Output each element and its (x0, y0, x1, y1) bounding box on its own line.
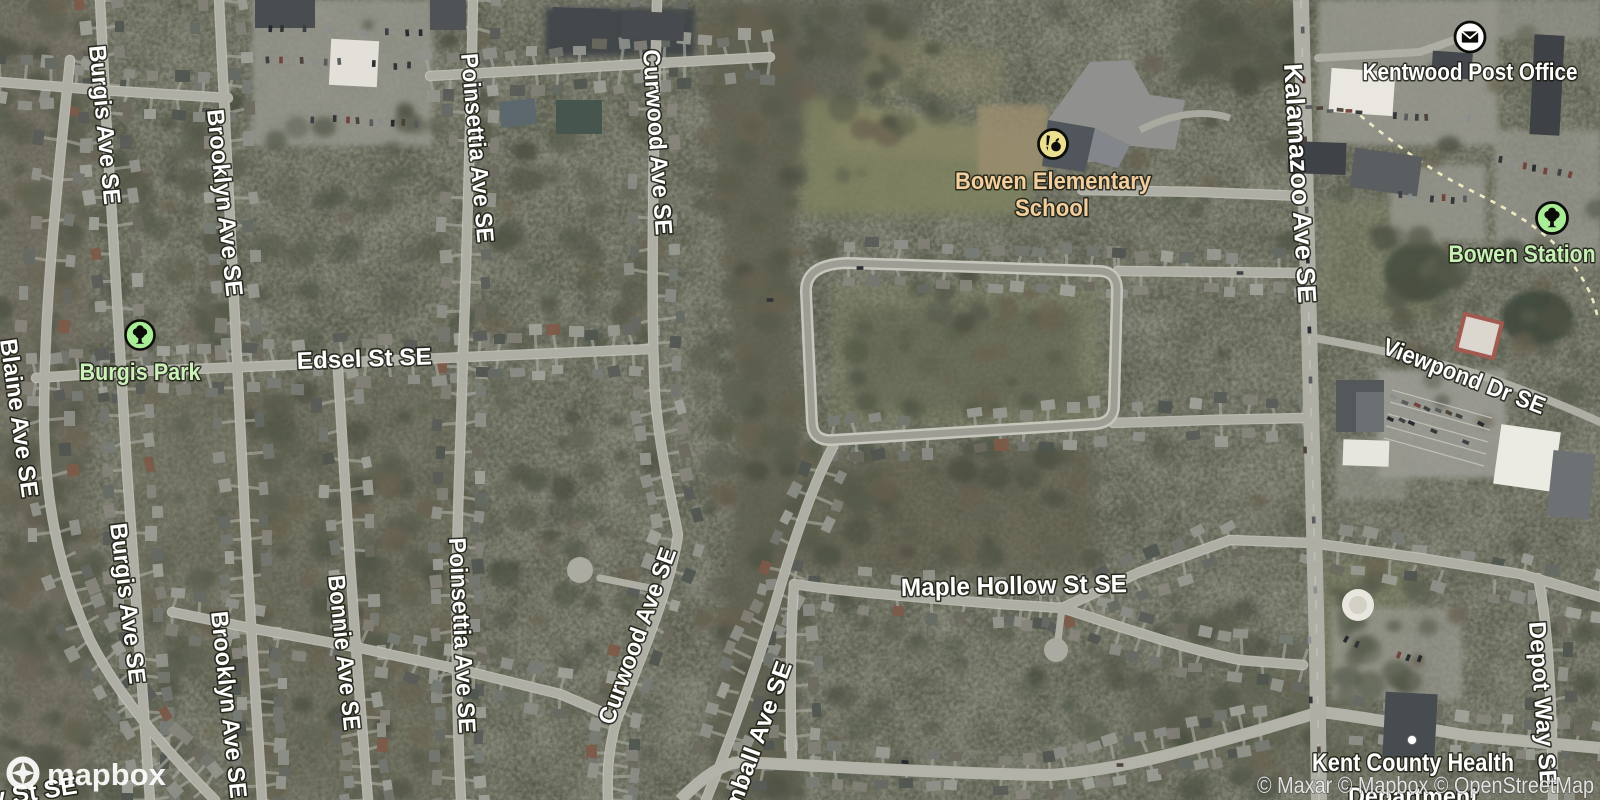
svg-text:© Maxar © Mapbox © OpenStreetM: © Maxar © Mapbox © OpenStreetMap (1257, 772, 1594, 798)
svg-text:Burgis Park: Burgis Park (80, 359, 202, 386)
svg-text:Maple Hollow St SE: Maple Hollow St SE (901, 570, 1127, 602)
svg-text:Bowen Elementary: Bowen Elementary (955, 168, 1152, 195)
svg-text:School: School (1015, 195, 1089, 222)
svg-text:Kentwood Post Office: Kentwood Post Office (1363, 59, 1578, 86)
svg-text:mapbox: mapbox (47, 757, 167, 792)
svg-text:Edsel St SE: Edsel St SE (296, 343, 432, 375)
svg-text:Bowen Station: Bowen Station (1449, 241, 1596, 268)
